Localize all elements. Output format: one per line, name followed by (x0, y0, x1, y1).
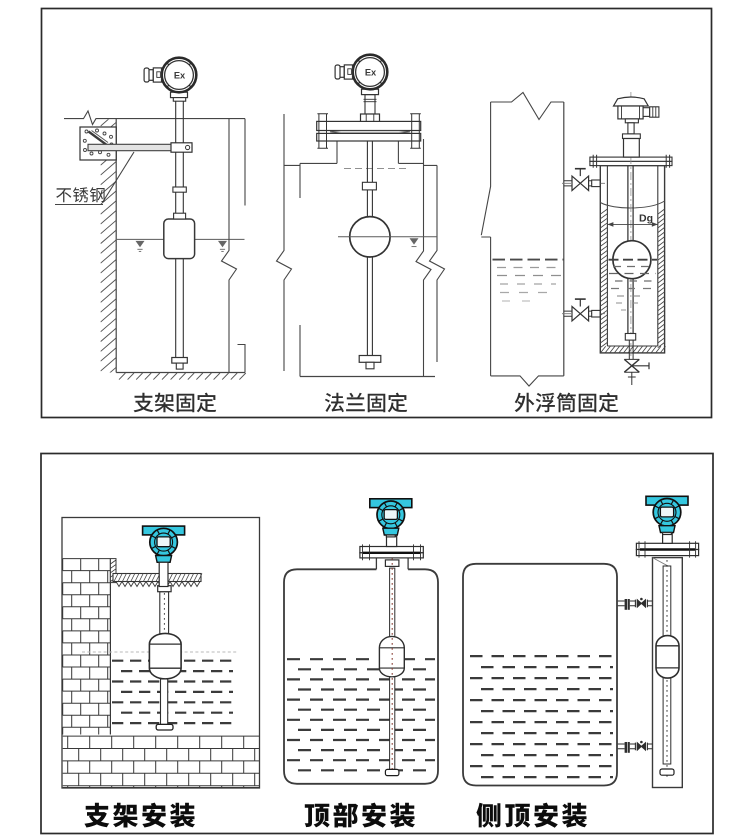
svg-text:Ex: Ex (365, 67, 377, 77)
svg-text:Ex: Ex (174, 70, 186, 80)
svg-text:Dg: Dg (639, 213, 653, 225)
